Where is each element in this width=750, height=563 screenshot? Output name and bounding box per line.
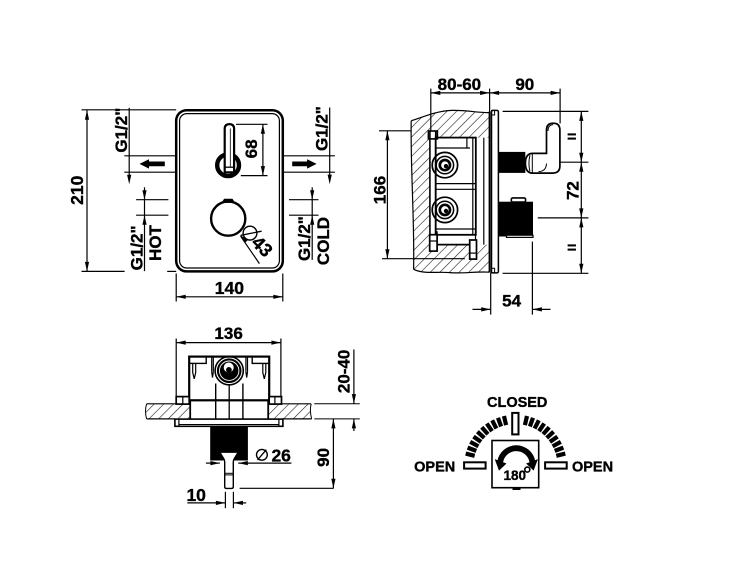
svg-text:210: 210 (67, 175, 87, 204)
svg-text:10: 10 (186, 485, 206, 505)
svg-text:136: 136 (214, 324, 242, 343)
svg-text:OPEN: OPEN (572, 459, 613, 475)
svg-text:G1/2": G1/2" (295, 216, 314, 261)
svg-text:=: = (567, 129, 576, 146)
svg-text:72: 72 (563, 181, 582, 200)
svg-text:G1/2": G1/2" (112, 108, 131, 153)
svg-text:26: 26 (271, 445, 291, 465)
svg-text:140: 140 (215, 278, 244, 298)
svg-text:180: 180 (504, 468, 527, 483)
svg-text:20-40: 20-40 (334, 350, 353, 393)
svg-text:G1/2": G1/2" (127, 225, 146, 270)
svg-text:54: 54 (502, 291, 521, 310)
svg-text:OPEN: OPEN (414, 459, 455, 475)
svg-text:80-60: 80-60 (438, 75, 481, 94)
svg-text:=: = (567, 240, 576, 257)
svg-text:68: 68 (242, 139, 261, 158)
svg-text:G1/2": G1/2" (313, 106, 332, 151)
svg-text:CLOSED: CLOSED (487, 395, 547, 411)
svg-text:166: 166 (371, 176, 390, 204)
svg-text:HOT: HOT (146, 224, 165, 261)
svg-text:90: 90 (314, 448, 333, 467)
svg-text:COLD: COLD (314, 217, 333, 265)
svg-text:90: 90 (515, 75, 534, 94)
